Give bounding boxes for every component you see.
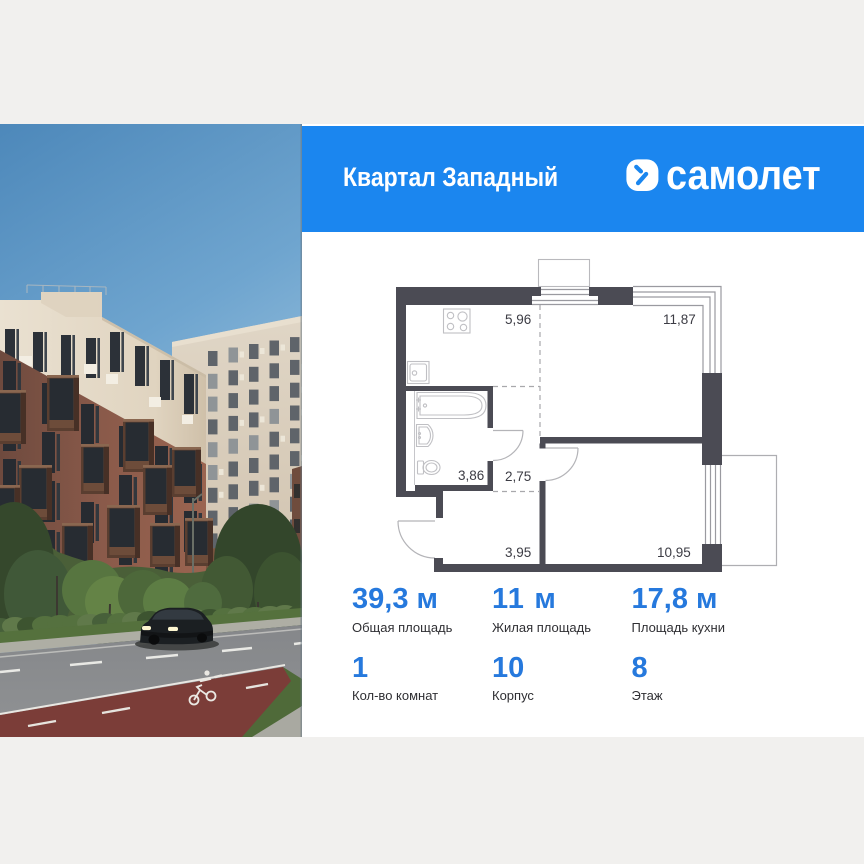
svg-text:5,96: 5,96 xyxy=(505,312,531,327)
svg-text:11,87: 11,87 xyxy=(663,312,696,327)
svg-text:3,95: 3,95 xyxy=(505,545,531,560)
svg-text:2,75: 2,75 xyxy=(505,469,531,484)
svg-text:10,95: 10,95 xyxy=(657,545,691,560)
svg-text:3,86: 3,86 xyxy=(458,468,484,483)
